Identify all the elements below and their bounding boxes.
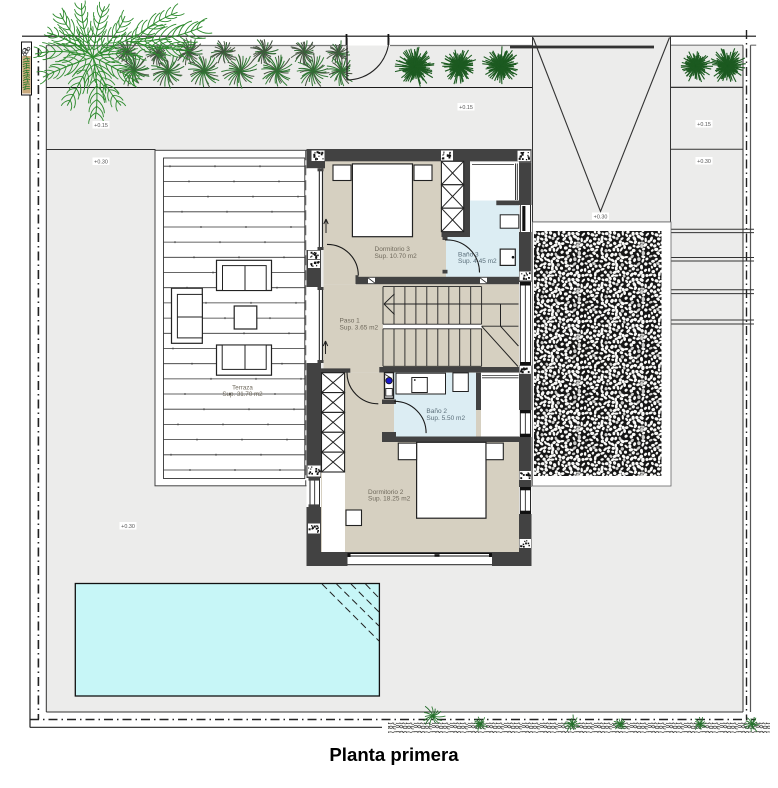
svg-text:Sup. 3.65 m2: Sup. 3.65 m2 bbox=[340, 324, 379, 331]
svg-text:+0.15: +0.15 bbox=[459, 105, 473, 111]
svg-text:Sup. 10.70 m2: Sup. 10.70 m2 bbox=[375, 253, 418, 260]
svg-text:+0.30: +0.30 bbox=[697, 159, 711, 165]
svg-text:+0.30: +0.30 bbox=[121, 524, 135, 530]
svg-text:Sup. 5.50 m2: Sup. 5.50 m2 bbox=[426, 415, 465, 422]
svg-text:Paso 1: Paso 1 bbox=[340, 317, 361, 324]
svg-text:+0.15: +0.15 bbox=[697, 122, 711, 128]
svg-text:Sup. 31.70 m2: Sup. 31.70 m2 bbox=[222, 391, 263, 398]
svg-text:+0.30: +0.30 bbox=[94, 159, 108, 165]
svg-text:+0.30: +0.30 bbox=[594, 214, 608, 220]
svg-text:Sup. 4.45 m2: Sup. 4.45 m2 bbox=[458, 258, 497, 265]
svg-text:+0.15: +0.15 bbox=[94, 123, 108, 129]
svg-text:Planta primera: Planta primera bbox=[329, 744, 459, 765]
svg-text:Sup. 18.25 m2: Sup. 18.25 m2 bbox=[368, 496, 411, 503]
